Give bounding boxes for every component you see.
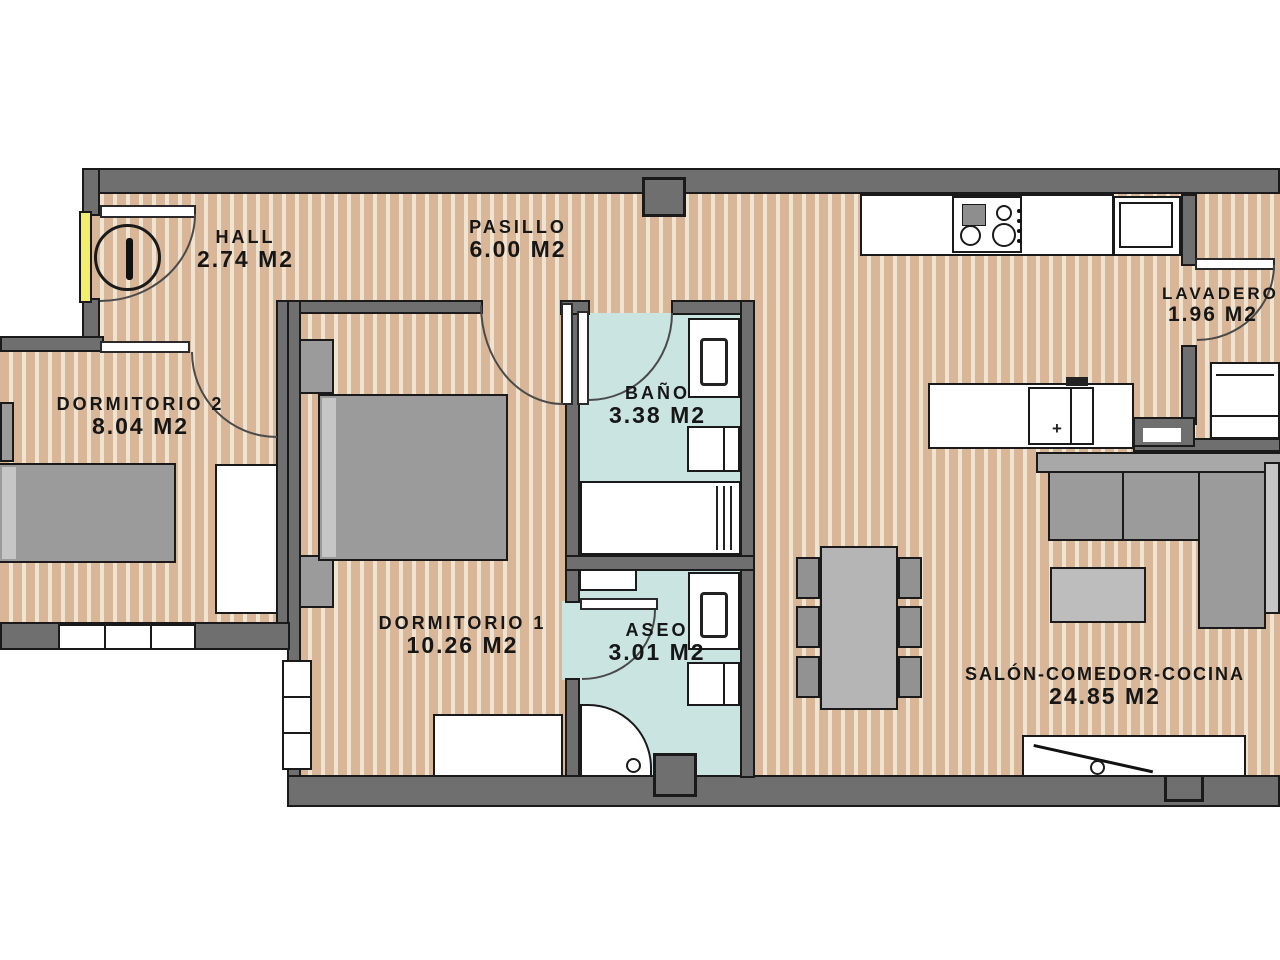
label-bano: BAÑO 3.38 M2 — [570, 383, 745, 429]
entrance-symbol-circle — [94, 224, 161, 291]
bathroom-basin — [687, 426, 740, 472]
fridge — [1113, 196, 1181, 256]
label-pasillo: PASILLO 6.00 M2 — [428, 217, 608, 263]
room-name: DORMITORIO 2 — [18, 394, 263, 414]
bathtub-tap-lines — [716, 486, 734, 550]
room-name: SALÓN-COMEDOR-COCINA — [930, 664, 1280, 684]
sofa-chaise — [1198, 471, 1266, 629]
sink-tap — [1066, 377, 1088, 386]
sofa-seat — [1048, 471, 1124, 541]
dining-chair — [898, 557, 922, 599]
stove-knob — [1017, 239, 1021, 243]
window-salon — [1022, 735, 1246, 777]
room-area: 3.38 M2 — [570, 403, 745, 429]
stove — [952, 196, 1022, 253]
label-salon: SALÓN-COMEDOR-COCINA 24.85 M2 — [930, 664, 1280, 710]
aseo-basin — [687, 662, 740, 706]
label-dormitorio1: DORMITORIO 1 10.26 M2 — [340, 613, 585, 659]
room-area: 1.96 M2 — [1162, 303, 1280, 327]
floor-plan: + — [0, 0, 1280, 960]
dining-chair — [796, 606, 820, 648]
stove-knob — [1017, 209, 1021, 213]
wall-lavadero-bottom — [1133, 417, 1195, 447]
wall-bottom-exterior — [287, 775, 1280, 807]
room-area: 2.74 M2 — [158, 247, 333, 273]
fridge-inner — [1119, 202, 1173, 248]
room-name: BAÑO — [570, 383, 745, 403]
burner-left — [960, 225, 981, 246]
dorm2-bed — [0, 463, 176, 563]
dining-chair — [796, 656, 820, 698]
room-name: HALL — [158, 227, 333, 247]
wall-notch — [1143, 428, 1181, 442]
burner-small — [996, 205, 1012, 221]
exterior-area-bottom-left — [0, 650, 288, 810]
oven-square — [962, 204, 986, 226]
sofa-armrest — [1264, 462, 1280, 614]
room-area: 3.01 M2 — [572, 640, 742, 666]
sink-divider — [1070, 389, 1072, 443]
window-dorm2 — [58, 624, 196, 650]
window-salon-pivot — [1090, 760, 1105, 775]
room-area: 10.26 M2 — [340, 633, 585, 659]
entrance-symbol-bar — [126, 238, 133, 280]
label-aseo: ASEO 3.01 M2 — [572, 620, 742, 666]
pillar-aseo — [653, 753, 697, 797]
label-dormitorio2: DORMITORIO 2 8.04 M2 — [18, 394, 263, 440]
sink-tap-symbol: + — [1052, 419, 1062, 439]
wall-dorm2-top — [0, 336, 104, 352]
wall-aseo-left-lower — [565, 678, 580, 777]
room-area: 6.00 M2 — [428, 237, 608, 263]
pillar-top — [642, 177, 686, 217]
wall-bano-right — [740, 300, 755, 778]
sofa-seat — [1122, 471, 1200, 541]
dining-chair — [898, 606, 922, 648]
window-mullion — [104, 626, 106, 648]
room-name: ASEO — [572, 620, 742, 640]
dorm2-bed-pillow — [2, 467, 16, 559]
label-hall: HALL 2.74 M2 — [158, 227, 333, 273]
stove-knob — [1017, 229, 1021, 233]
sofa-back — [1036, 452, 1280, 473]
lavadero-counter — [1210, 415, 1280, 439]
burner-large — [992, 223, 1016, 247]
basin-divider — [723, 664, 725, 704]
label-lavadero: LAVADERO 1.96 M2 — [1162, 284, 1280, 327]
room-area: 8.04 M2 — [18, 414, 263, 440]
toilet-cistern — [700, 338, 728, 386]
wall-bano-aseo-divider — [565, 555, 755, 571]
dorm1-bed — [318, 394, 508, 561]
wall-entry-upper — [82, 168, 100, 216]
room-area: 24.85 M2 — [930, 684, 1280, 710]
dorm1-bed-pillow — [322, 398, 336, 557]
dining-chair — [898, 656, 922, 698]
window-mullion — [284, 732, 310, 734]
room-name: LAVADERO — [1162, 284, 1280, 303]
window-dorm1 — [282, 660, 312, 770]
wall-dorm1-top — [287, 300, 483, 314]
bathtub — [580, 481, 741, 555]
dorm2-door-leaf — [100, 341, 190, 353]
kitchen-sink: + — [1028, 387, 1094, 445]
dorm2-side-table — [0, 402, 14, 462]
dorm2-wardrobe — [215, 464, 279, 614]
stove-knob — [1017, 219, 1021, 223]
window-mullion — [284, 696, 310, 698]
aseo-door-leaf — [580, 598, 658, 610]
coffee-table — [1050, 567, 1146, 623]
window-mullion — [150, 626, 152, 648]
basin-divider — [723, 428, 725, 470]
shower-drain — [626, 758, 641, 773]
wall-lavadero-left-lower — [1181, 345, 1197, 425]
washer-panel-line — [1216, 374, 1274, 376]
exterior-area-top-left — [0, 168, 84, 340]
room-name: PASILLO — [428, 217, 608, 237]
wall-lavadero-left-upper — [1181, 194, 1197, 266]
dining-table — [820, 546, 898, 710]
entrance-door-strip — [79, 211, 92, 303]
dorm1-wardrobe — [433, 714, 563, 778]
dining-chair — [796, 557, 820, 599]
room-name: DORMITORIO 1 — [340, 613, 585, 633]
